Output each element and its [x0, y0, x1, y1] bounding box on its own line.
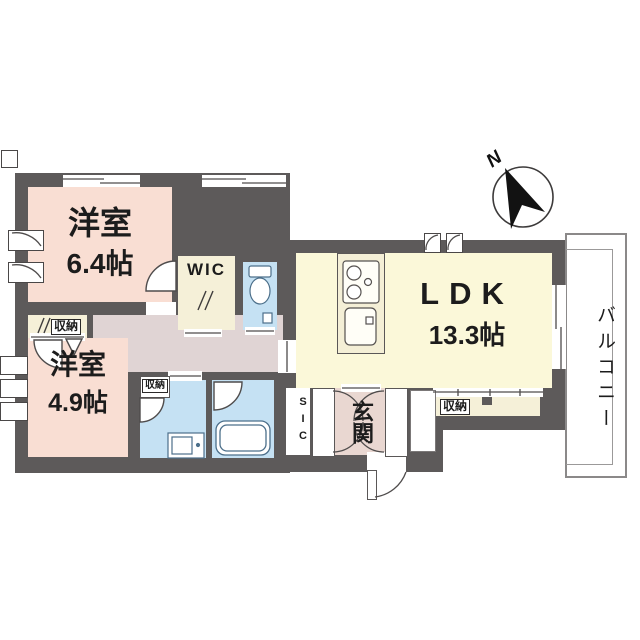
- toilet-sliding-door: [245, 327, 275, 335]
- ldk-size: 13.3帖: [392, 322, 542, 349]
- bedroom1-name: 洋室: [28, 207, 172, 241]
- floor-plan: バルコニー N: [0, 0, 640, 640]
- ldk-name: LDK: [392, 278, 542, 311]
- window-top-toilet: [202, 175, 286, 187]
- window-ldk-top-b: [446, 233, 463, 253]
- closet-ldk-label: 収納: [440, 399, 470, 415]
- toilet-floor: [243, 262, 277, 330]
- closet-washroom-label: 収納: [142, 379, 168, 393]
- balcony-sliding-window: [552, 285, 566, 369]
- closet-ldk-sliding-door: [433, 388, 543, 397]
- ldk-floor: [296, 253, 552, 388]
- entrance-label: 玄関: [346, 393, 373, 451]
- front-door-leaf: [367, 470, 377, 500]
- washroom-sliding-door: [168, 371, 202, 381]
- window-bedroom2-a: [0, 356, 28, 375]
- ldk-entrance-door: [341, 384, 381, 392]
- bedroom2-name: 洋室: [26, 350, 130, 379]
- balcony-label: バルコニー: [578, 264, 614, 474]
- bedroom1-size: 6.4帖: [28, 249, 172, 278]
- corner-post: [1, 150, 18, 168]
- hall-ldk-door: [278, 340, 296, 373]
- window-ldk-top-a: [424, 233, 441, 253]
- wic-sliding-door: [184, 329, 222, 337]
- entry-cabinet: [410, 390, 436, 452]
- front-door-swing: [375, 472, 406, 497]
- sic-label: SIC: [287, 392, 308, 450]
- bedroom2-size: 4.9帖: [24, 390, 132, 416]
- kitchen-counter: [337, 253, 385, 354]
- entrance-closet-right: [385, 388, 408, 457]
- bedroom1-doorway: [146, 302, 176, 315]
- entrance-closet-left: [312, 388, 335, 457]
- wic-label: WIC: [178, 261, 235, 279]
- bathroom-floor: [212, 380, 274, 458]
- closet-ldk-notch: [482, 396, 492, 405]
- north-compass: N: [483, 146, 553, 229]
- north-label: N: [483, 146, 507, 172]
- closet-bedroom2-label: 収納: [51, 319, 81, 335]
- window-top-bedroom1: [63, 175, 140, 187]
